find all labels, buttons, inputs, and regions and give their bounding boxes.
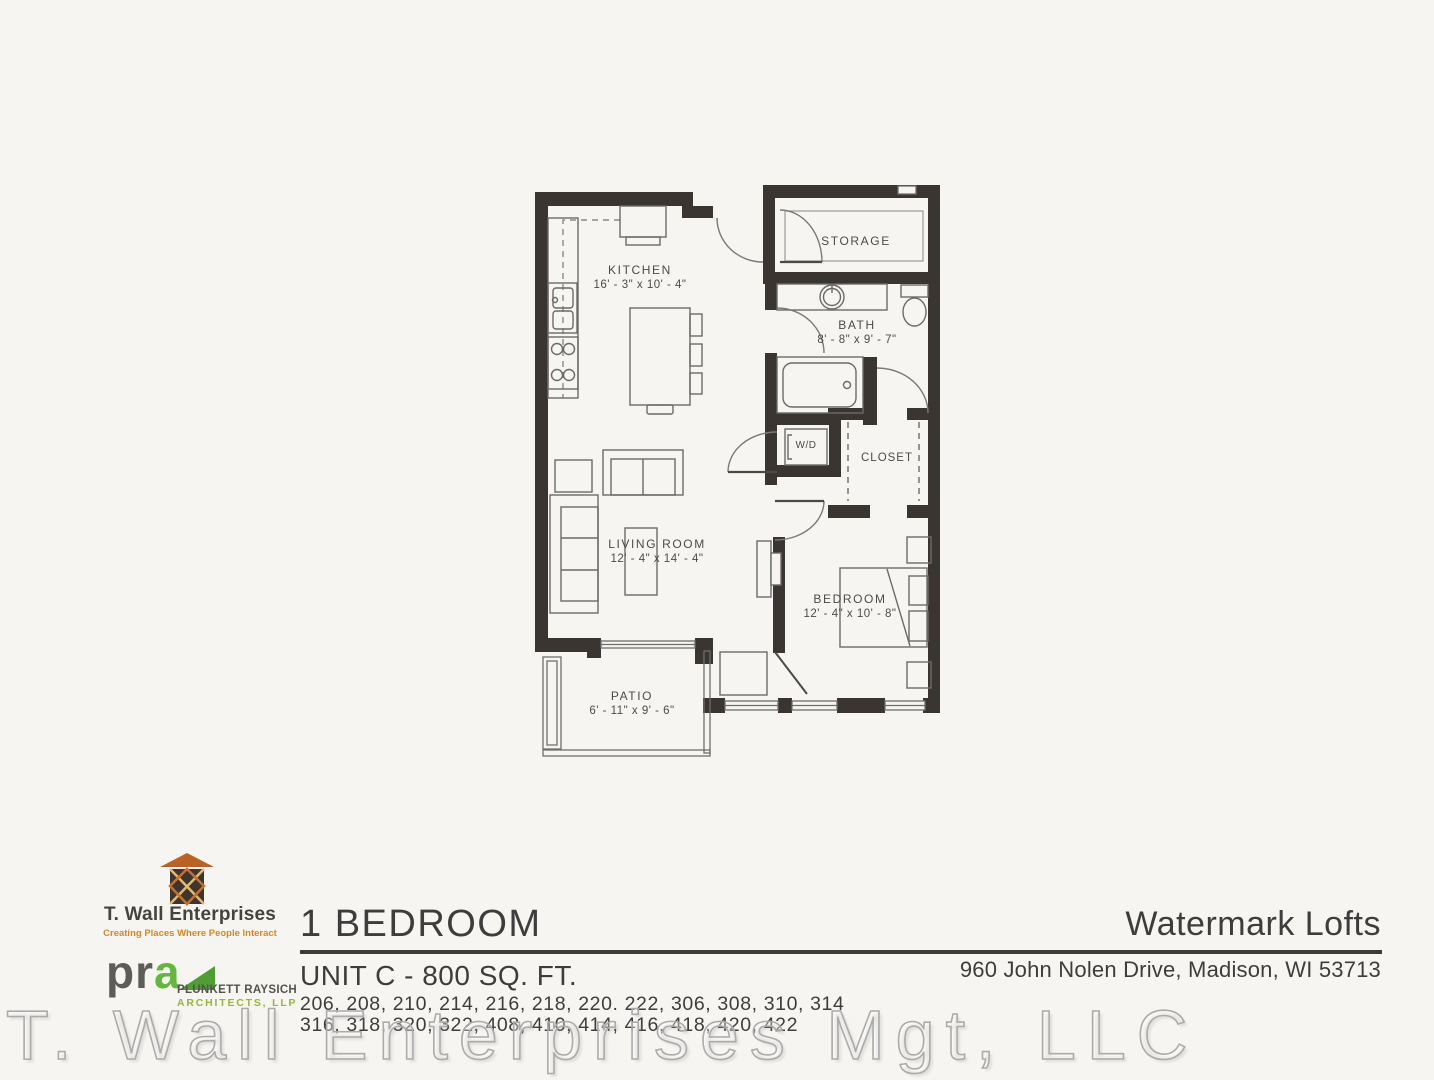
upper-cabinets-dashed xyxy=(563,220,620,398)
kitchen-island xyxy=(630,308,690,405)
closet-name: CLOSET xyxy=(861,452,913,464)
nightstand xyxy=(907,662,931,688)
kitchen-label: KITCHEN 16' - 3" x 10' - 4" xyxy=(593,263,686,291)
bath-label: BATH 8' - 8" x 9' - 7" xyxy=(817,318,896,346)
island-stool xyxy=(647,405,673,414)
wd-label: W/D xyxy=(796,440,817,451)
tv xyxy=(771,553,781,585)
kitchen-name: KITCHEN xyxy=(593,263,686,277)
twall-logo-tagline: Creating Places Where People Interact xyxy=(95,928,285,939)
nightstand xyxy=(907,537,931,563)
bath-name: BATH xyxy=(817,318,896,332)
divider-rule xyxy=(300,950,1382,954)
sofa xyxy=(550,495,598,613)
storage-window xyxy=(898,186,916,194)
bedroom-dims: 12' - 4" x 10' - 8" xyxy=(803,608,896,620)
wd-name: W/D xyxy=(796,440,817,451)
scanned-floorplan-sheet: KITCHEN 16' - 3" x 10' - 4" STORAGE BATH… xyxy=(0,0,1434,1080)
unit-type-title: 1 BEDROOM xyxy=(300,903,542,946)
bedroom-door-arc xyxy=(775,501,824,540)
refrigerator xyxy=(620,206,666,237)
property-address: 960 John Nolen Drive, Madison, WI 53713 xyxy=(960,957,1381,983)
tv-console xyxy=(757,541,771,597)
patio-planter xyxy=(543,657,561,749)
bedroom-label: BEDROOM 12' - 4" x 10' - 8" xyxy=(803,592,896,620)
bath-dims: 8' - 8" x 9' - 7" xyxy=(817,334,896,346)
living-room-dims: 12' - 4" x 14' - 4" xyxy=(608,553,706,565)
storage-door-arc xyxy=(780,210,822,262)
angled-closet-door xyxy=(775,652,807,694)
property-name: Watermark Lofts xyxy=(1125,905,1381,944)
kitchen-dims: 16' - 3" x 10' - 4" xyxy=(593,279,686,291)
storage-label: STORAGE xyxy=(821,234,891,248)
island-stool xyxy=(690,314,702,336)
twall-tower-icon xyxy=(158,852,216,906)
toilet-tank xyxy=(901,285,928,297)
entry-closet xyxy=(720,652,767,695)
storage-name: STORAGE xyxy=(821,234,891,248)
closet-door-arc xyxy=(877,368,928,413)
patio-name: PATIO xyxy=(589,689,674,703)
living-room-name: LIVING ROOM xyxy=(608,537,706,551)
toilet-bowl xyxy=(903,298,926,326)
island-stool xyxy=(690,344,702,366)
floor-plan: KITCHEN 16' - 3" x 10' - 4" STORAGE BATH… xyxy=(535,185,945,775)
patio-label: PATIO 6' - 11" x 9' - 6" xyxy=(589,689,674,717)
closet-label: CLOSET xyxy=(861,452,913,464)
pillow xyxy=(909,611,928,641)
kitchen-fixtures xyxy=(548,206,702,414)
pillow xyxy=(909,576,928,605)
end-table xyxy=(555,460,592,492)
unit-subtitle: UNIT C - 800 SQ. FT. xyxy=(300,960,577,992)
watermark-text: T. Wall Enterprises Mgt, LLC xyxy=(6,995,1434,1075)
twall-logo-name: T. Wall Enterprises xyxy=(95,904,285,926)
entry-door-arc xyxy=(717,218,763,262)
living-room-furniture xyxy=(550,450,781,613)
patio-dims: 6' - 11" x 9' - 6" xyxy=(589,705,674,717)
living-room-label: LIVING ROOM 12' - 4" x 14' - 4" xyxy=(608,537,706,565)
island-stool xyxy=(690,373,702,394)
pra-abbr-pr: pr xyxy=(106,946,154,998)
bedroom-name: BEDROOM xyxy=(803,592,896,606)
